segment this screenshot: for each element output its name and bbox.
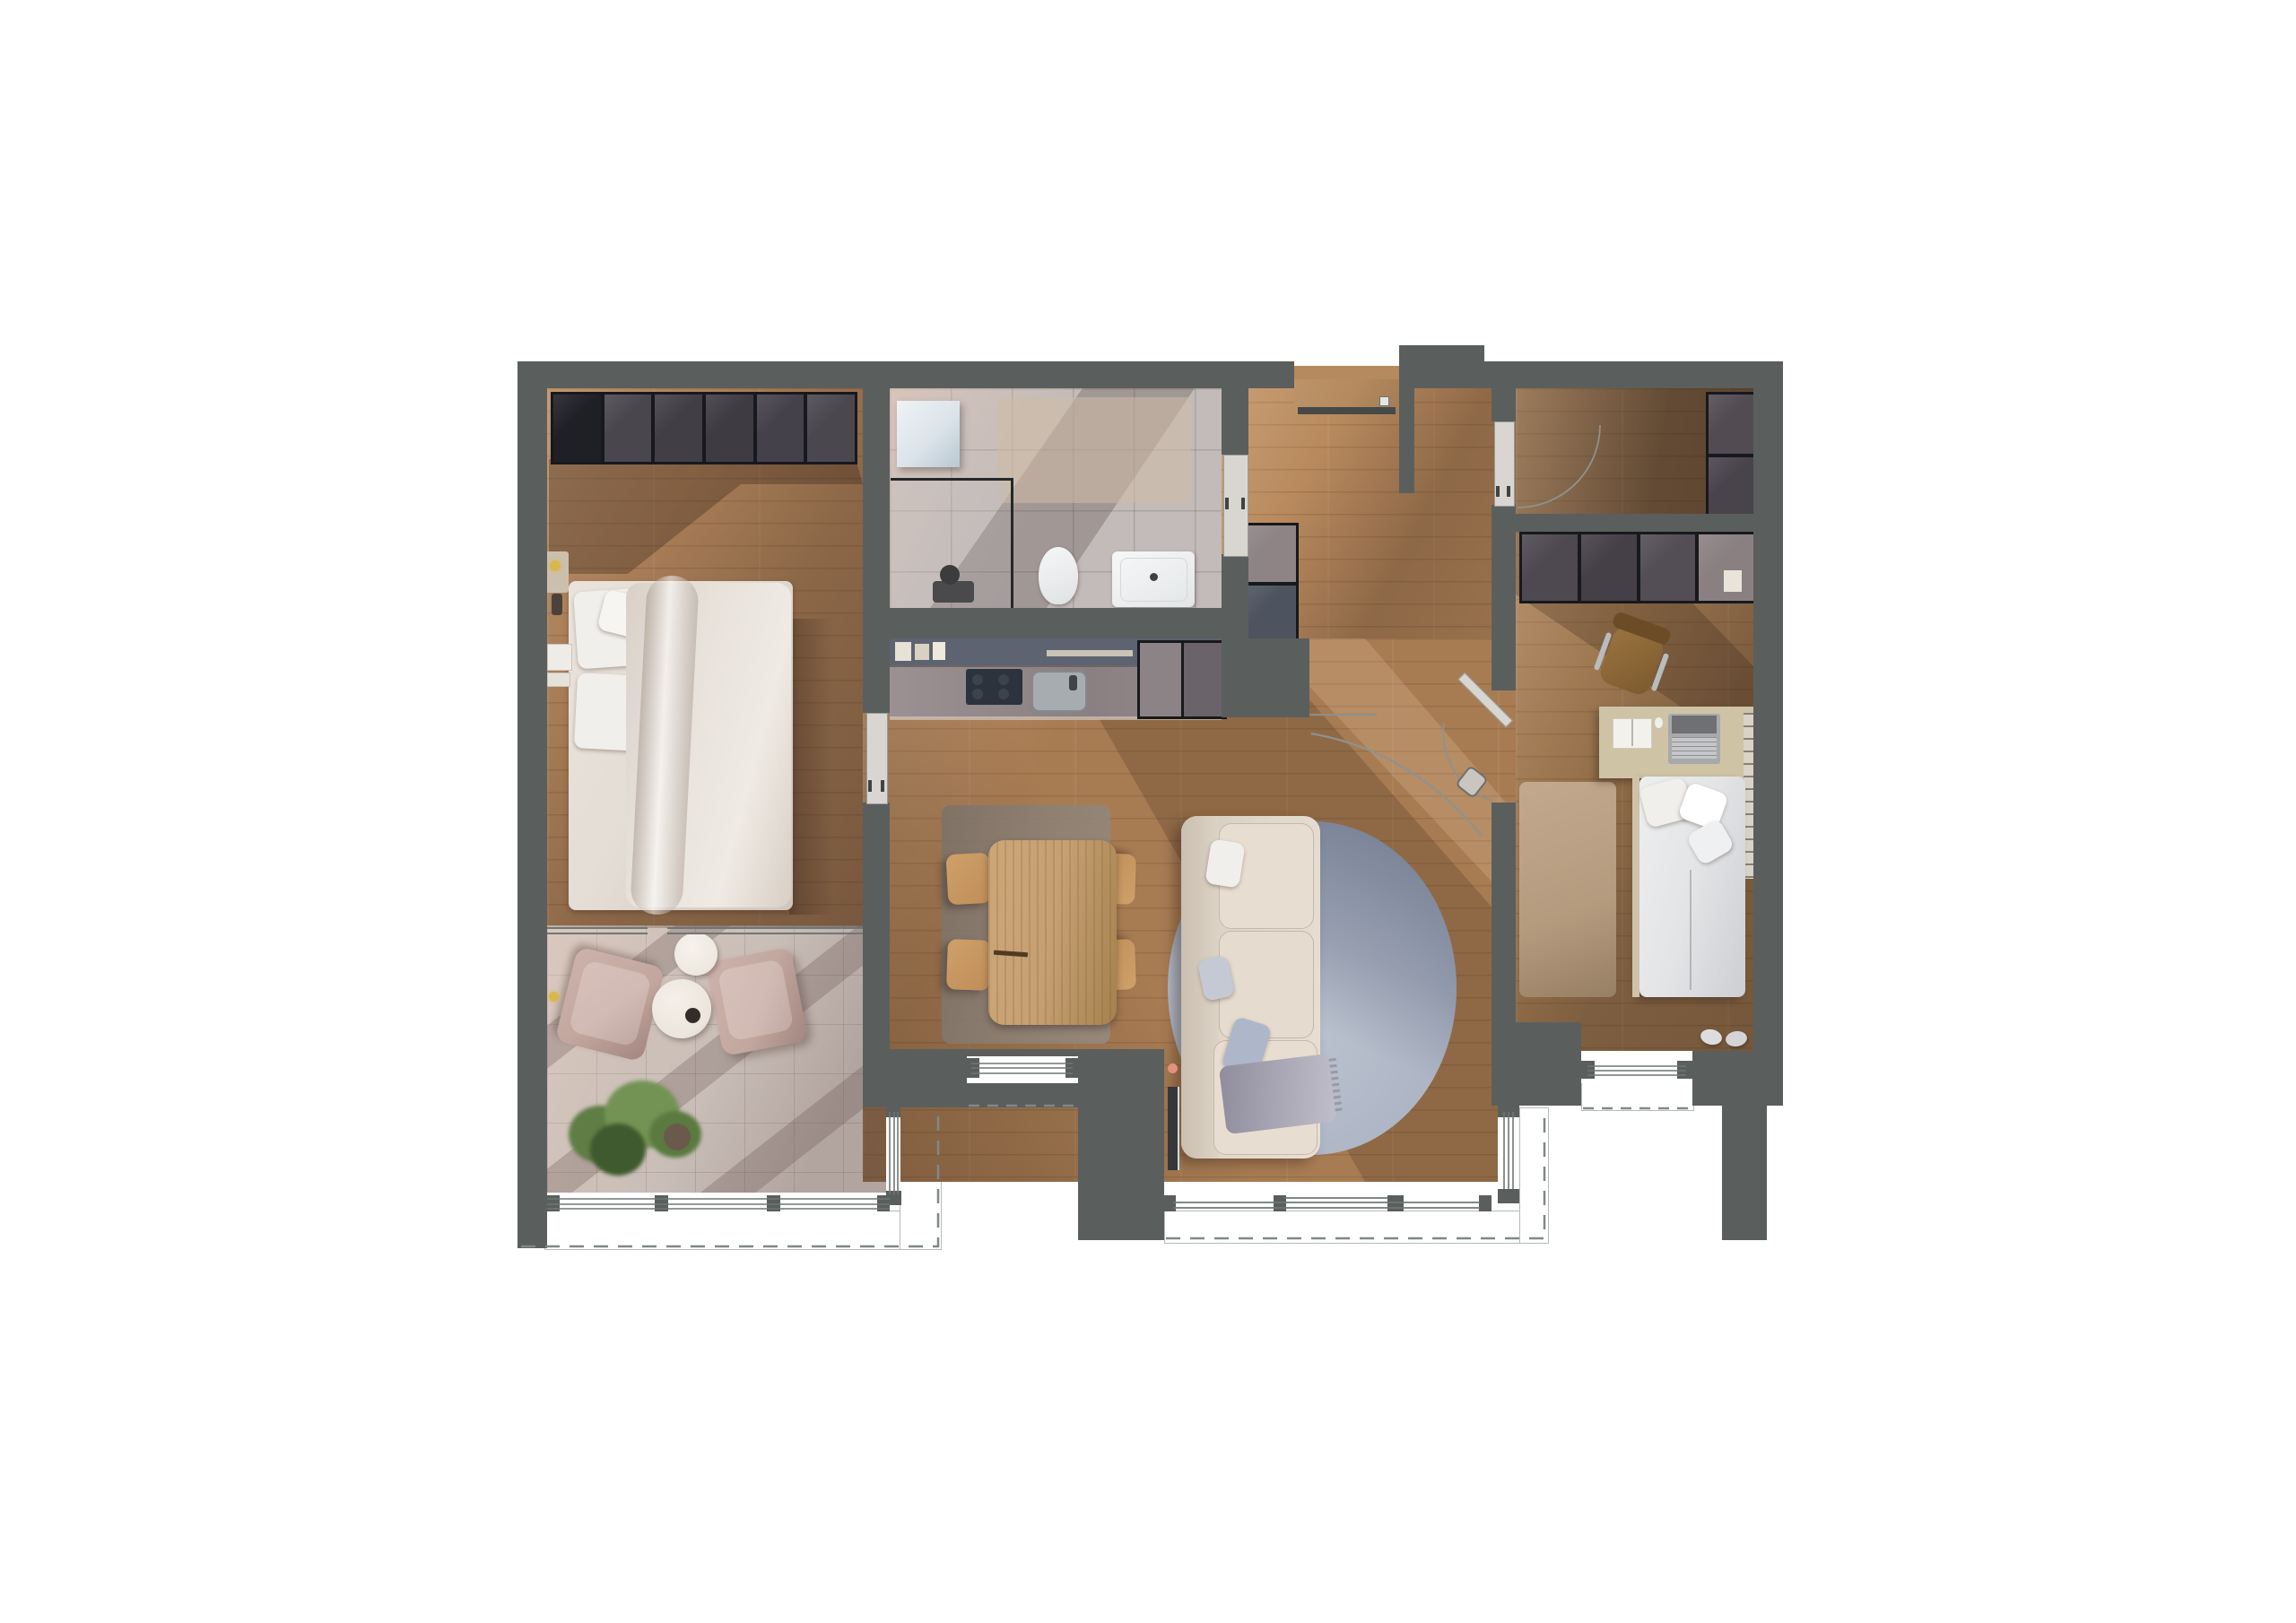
sofa-pillow-white: [1205, 838, 1245, 888]
loggia-table-large: [652, 979, 711, 1038]
laptop-screen: [1672, 716, 1717, 733]
armchair-left-cushion: [568, 959, 652, 1047]
dining-table: [988, 840, 1117, 1025]
shelf-jar-1: [895, 642, 911, 661]
bath-mat: [998, 397, 1191, 503]
wall-entry-stub: [1399, 388, 1414, 493]
single-bed: [1639, 777, 1745, 997]
hall-shoe-cabinet-panel-1: [1243, 525, 1296, 582]
bedroom2-cabinet-item: [1724, 570, 1742, 592]
post-dining-left: [967, 1058, 979, 1078]
lamp-yellow-1: [550, 560, 561, 571]
wall-top-left: [517, 361, 1294, 388]
post-loggia-1: [547, 1195, 560, 1211]
wall-hall-right-upper: [1492, 361, 1516, 421]
post-bd2-right: [1677, 1061, 1692, 1079]
bedroom2-cabinet-row-panel-3: [1640, 534, 1696, 601]
wall-top-raised-block: [1399, 345, 1484, 372]
post-bd2-left: [1581, 1061, 1595, 1079]
plant-foliage-3: [590, 1124, 646, 1176]
kitchen-sink: [1031, 671, 1087, 712]
bed2-frame-edge: [1632, 777, 1639, 997]
lamp-yellow-2: [549, 992, 559, 1002]
burner-4: [998, 689, 1009, 699]
book-spine: [1631, 719, 1633, 746]
wall-books-1: [547, 644, 572, 671]
bedroom2-rug: [1519, 782, 1616, 997]
window-dining-south: [967, 1056, 1078, 1083]
burner-3: [972, 689, 983, 699]
balcony-right: [1164, 1211, 1549, 1244]
plant: [563, 1072, 716, 1188]
loggia-table-bowl: [685, 1008, 700, 1023]
bathroom-door-handle-b: [1241, 498, 1245, 509]
wall-closet-divider: [1516, 514, 1753, 532]
bedroom2-cabinet-row-panel-2: [1581, 534, 1637, 601]
bedroom1-door-handle-b: [881, 780, 884, 792]
closet-door-handle-b: [1507, 486, 1510, 497]
bath-stool: [897, 401, 960, 467]
sofa-blanket: [1219, 1054, 1337, 1135]
nightstand-top: [545, 551, 569, 593]
bedside-objects: [552, 594, 562, 615]
bedroom1-wardrobe-panel-1: [553, 395, 601, 462]
bedroom1-wardrobe-panel-4: [706, 395, 753, 462]
wall-bedroom1-right-upper: [863, 388, 890, 713]
burner-1: [972, 674, 983, 685]
shower-fixture: [933, 581, 974, 603]
closet-wardrobe-panel-2: [1709, 457, 1756, 516]
shelf-jar-2: [915, 644, 929, 660]
bedroom1-wardrobe-panel-3: [655, 395, 702, 462]
shelf-long-item: [1047, 650, 1133, 656]
balcony-right-arm: [1519, 1107, 1549, 1244]
post-living-2: [1274, 1195, 1286, 1211]
post-dining-right: [1065, 1058, 1078, 1078]
bathroom-door-handle-a: [1225, 498, 1229, 509]
open-book: [1613, 718, 1652, 749]
floor-plan-canvas: [0, 0, 2296, 1623]
balcony-left: [544, 1211, 942, 1250]
wall-bathroom-right-upper: [1222, 388, 1248, 455]
entry-door: [1298, 407, 1396, 414]
tall-cabinet-left: [1140, 643, 1181, 716]
wall-living-east-block: [1492, 1022, 1581, 1052]
dining-chair-1: [946, 853, 992, 905]
table-grain: [988, 840, 1117, 1025]
window-loggia-east: [886, 1112, 900, 1197]
hall-shoe-cabinet-panel-2: [1243, 586, 1296, 642]
closet-wardrobe-panel-1: [1709, 395, 1756, 454]
entry-door-handle: [1379, 396, 1389, 406]
window-bedroom2-south: [1581, 1058, 1692, 1083]
wall-bedroom2-bottom-right: [1692, 1051, 1767, 1106]
tall-cabinet-right: [1184, 643, 1225, 716]
window-living-south: [1164, 1182, 1492, 1211]
loggia-armchair-right: [706, 947, 808, 1056]
wall-wing-right: [1722, 1106, 1767, 1240]
post-living-east-bottom: [1498, 1189, 1519, 1203]
wall-bathroom-right-lower: [1222, 554, 1248, 608]
shelf-jar-3: [933, 642, 945, 660]
wall-pillar: [1078, 1049, 1164, 1240]
balcony-bedroom2: [1581, 1081, 1694, 1111]
closet-wardrobe: [1706, 392, 1759, 519]
shower-head: [940, 565, 960, 585]
bedroom2-cabinet-row: [1519, 532, 1757, 603]
wall-right: [1753, 361, 1783, 1106]
wall-hall-right-mid: [1492, 505, 1516, 690]
burner-2: [998, 674, 1009, 685]
toilet: [1039, 547, 1078, 604]
closet-door-handle-a: [1496, 486, 1500, 497]
armchair-right-cushion: [717, 959, 795, 1041]
post-loggia-east-bottom: [886, 1191, 901, 1205]
wall-bedroom2-bottom-left: [1492, 1051, 1581, 1106]
window-loggia-south: [547, 1193, 890, 1212]
post-living-3: [1387, 1195, 1404, 1211]
laptop: [1668, 714, 1720, 764]
post-loggia-2: [655, 1195, 668, 1211]
sink-faucet: [1069, 675, 1077, 690]
post-living-1: [1164, 1195, 1176, 1211]
bedroom1-wardrobe: [551, 392, 857, 464]
washbasin: [1112, 551, 1195, 607]
bedroom1-wardrobe-panel-2: [604, 395, 652, 462]
laptop-keyboard: [1672, 737, 1717, 759]
bedroom2-cabinet-row-panel-1: [1522, 534, 1578, 601]
cooktop: [966, 669, 1022, 705]
kitchen-tall-cabinet: [1137, 640, 1227, 719]
wall-bedroom1-right-lower: [863, 803, 890, 1049]
loggia-table-small: [674, 933, 717, 976]
post-loggia-east-top: [886, 1106, 900, 1117]
wall-hall-right-lower: [1492, 803, 1516, 1051]
double-bed: [569, 581, 793, 910]
decor-peach: [1168, 1063, 1178, 1073]
bed2-pillow-3: [1685, 818, 1735, 866]
tv-panel: [1168, 1087, 1179, 1170]
bed2-duvet-seam: [1690, 870, 1692, 990]
bedroom1-wardrobe-panel-5: [757, 395, 804, 462]
post-living-east-top: [1498, 1106, 1519, 1117]
wall-bathroom-bottom: [863, 608, 1248, 638]
wall-kitchen-stub: [1222, 638, 1309, 717]
sofa: [1181, 816, 1320, 1159]
window-living-east: [1498, 1109, 1519, 1193]
desk-mouse: [1655, 717, 1663, 728]
desk: [1599, 707, 1753, 778]
post-living-4: [1479, 1195, 1492, 1211]
dining-chair-2: [946, 939, 991, 991]
wall-books-2: [547, 673, 570, 687]
basin-faucet: [1150, 573, 1158, 581]
plant-pot: [664, 1124, 691, 1150]
bedroom1-wardrobe-panel-6: [807, 395, 855, 462]
post-loggia-3: [767, 1195, 780, 1211]
wall-left: [517, 361, 547, 1248]
bed1-cast-shadow: [789, 619, 832, 915]
bedroom1-door-handle-a: [868, 780, 872, 792]
